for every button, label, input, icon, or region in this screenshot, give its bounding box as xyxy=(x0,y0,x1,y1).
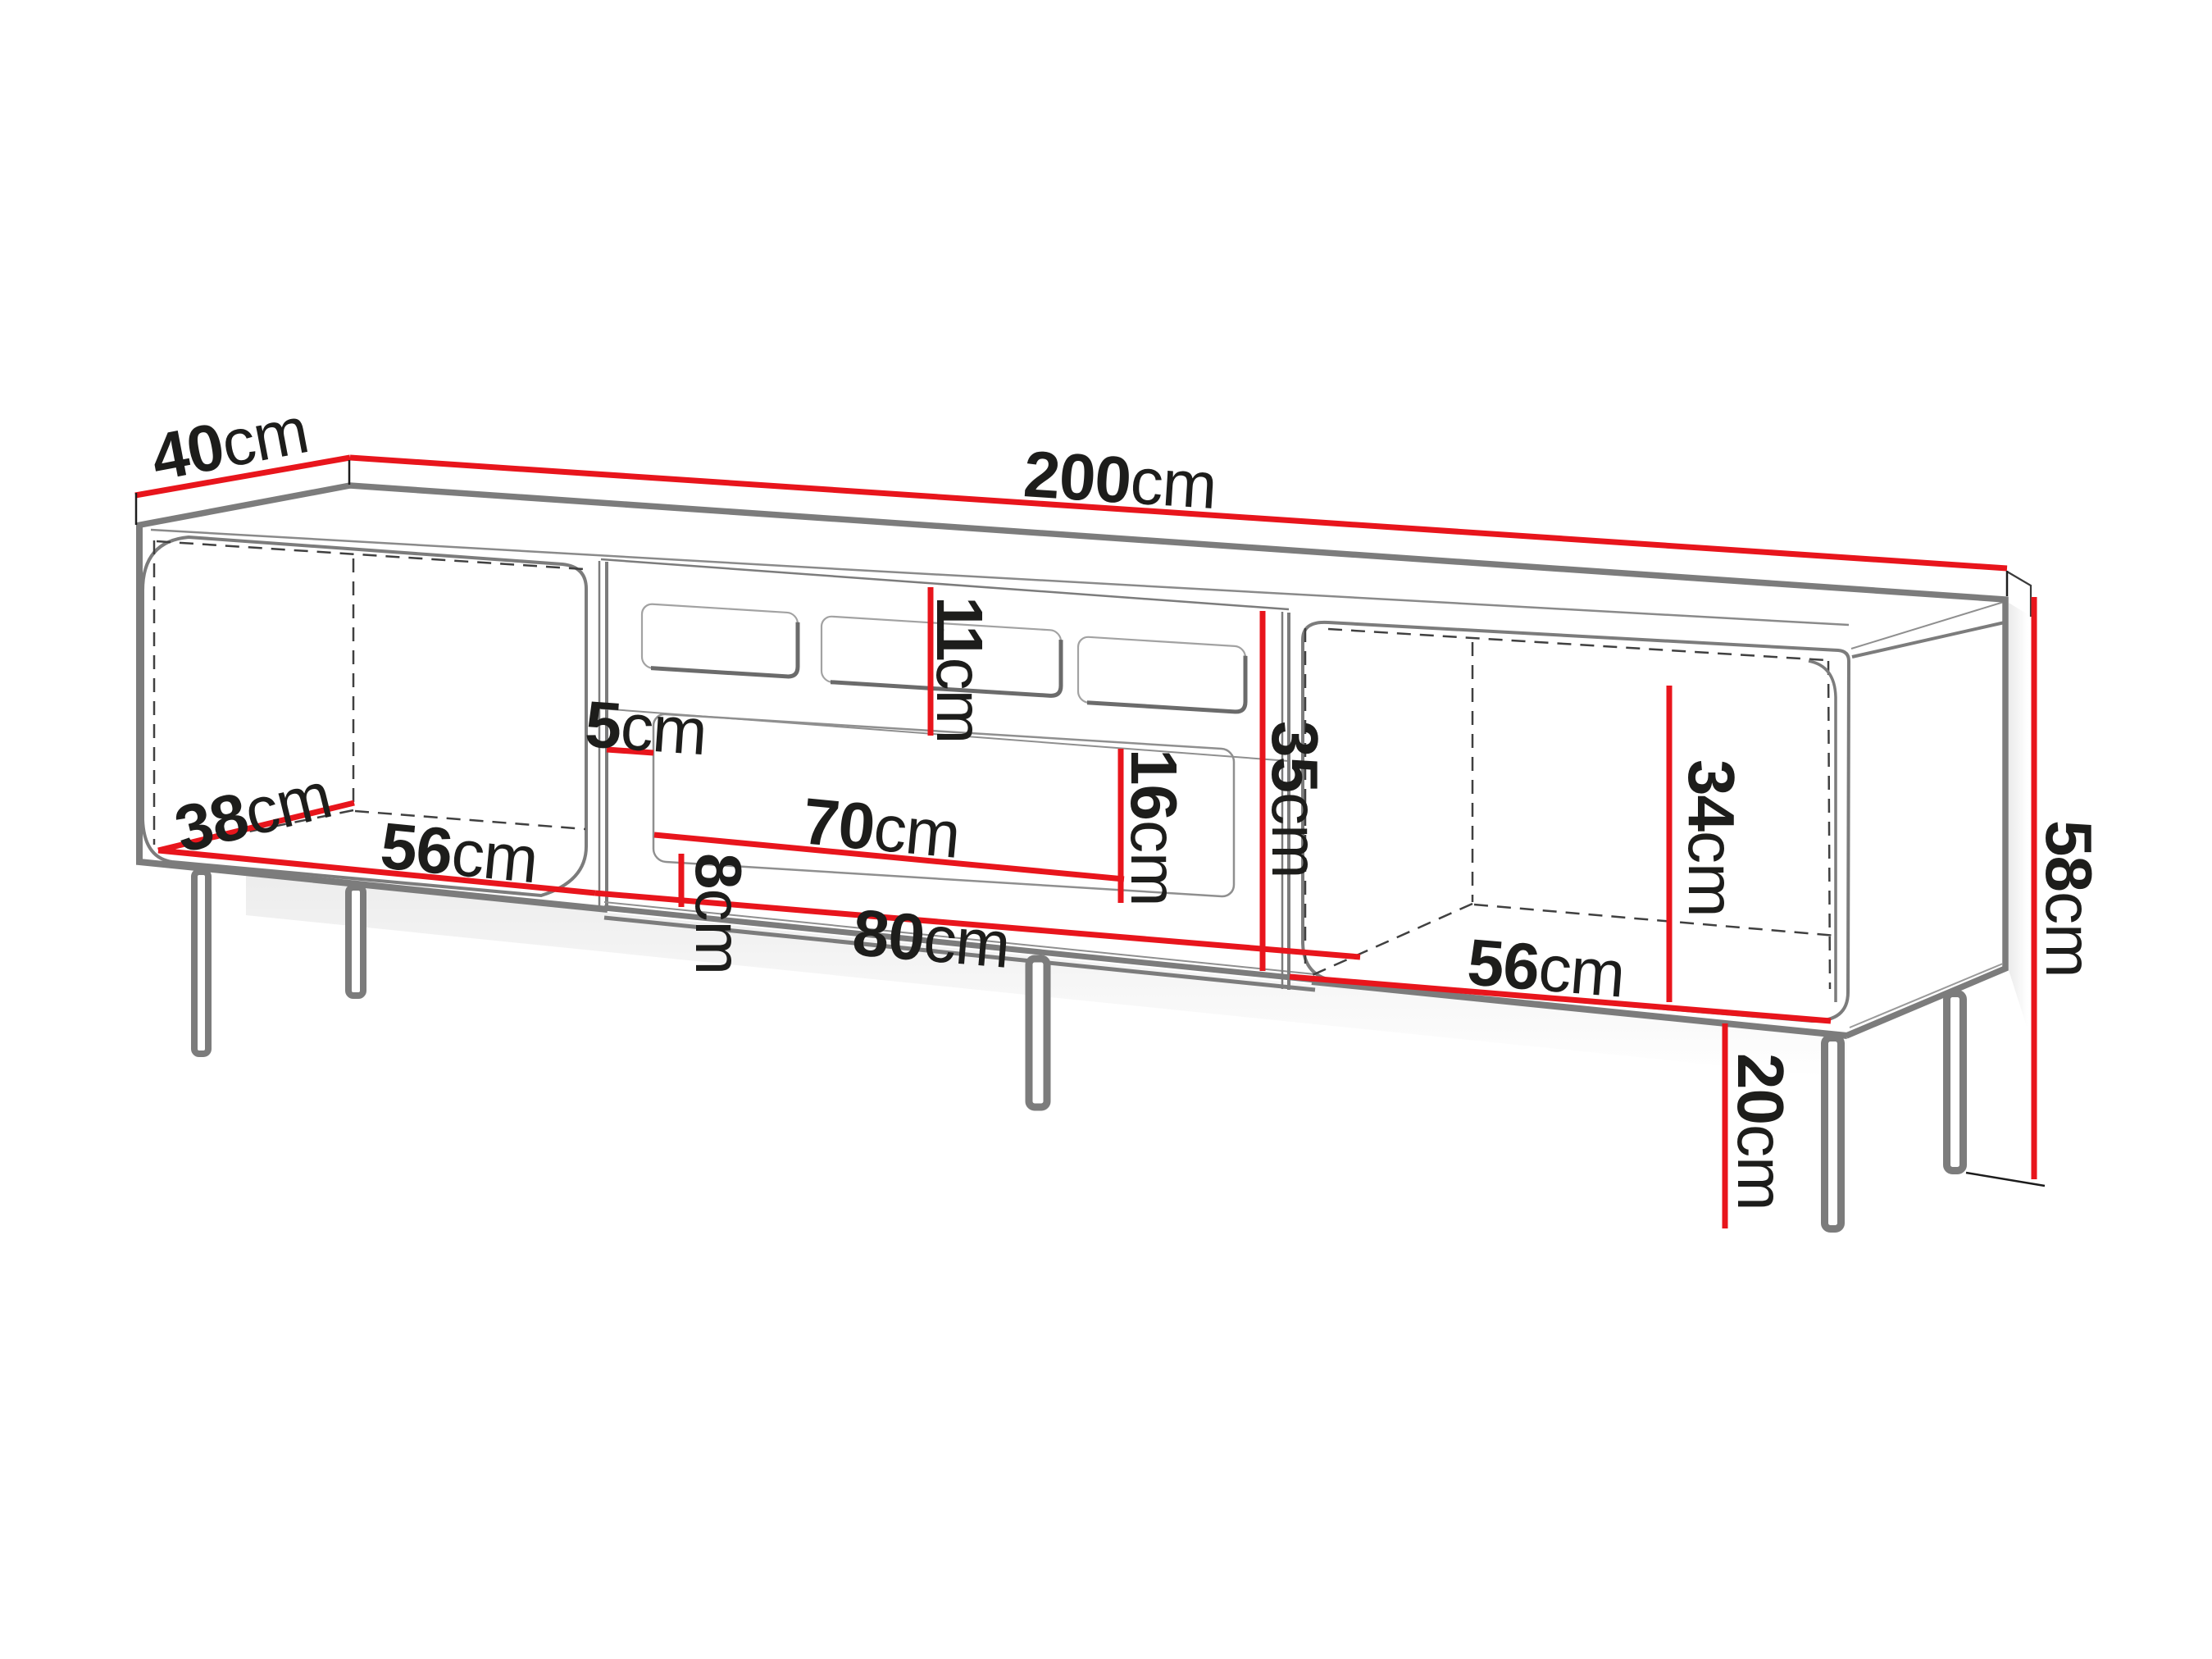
svg-text:38cm: 38cm xyxy=(168,758,338,866)
svg-text:35cm: 35cm xyxy=(1258,721,1331,878)
svg-text:20cm: 20cm xyxy=(1724,1053,1797,1210)
svg-text:56cm: 56cm xyxy=(377,809,540,896)
svg-text:16cm: 16cm xyxy=(1117,749,1190,906)
svg-text:5cm: 5cm xyxy=(583,687,709,768)
svg-text:8cm: 8cm xyxy=(682,853,755,974)
svg-text:56cm: 56cm xyxy=(1465,925,1627,1010)
svg-text:11cm: 11cm xyxy=(923,596,996,743)
svg-text:34cm: 34cm xyxy=(1675,759,1748,917)
svg-text:70cm: 70cm xyxy=(799,784,963,872)
svg-text:58cm: 58cm xyxy=(2032,820,2105,978)
svg-text:80cm: 80cm xyxy=(850,896,1013,982)
svg-text:200cm: 200cm xyxy=(1022,437,1218,522)
svg-text:40cm: 40cm xyxy=(146,393,314,494)
